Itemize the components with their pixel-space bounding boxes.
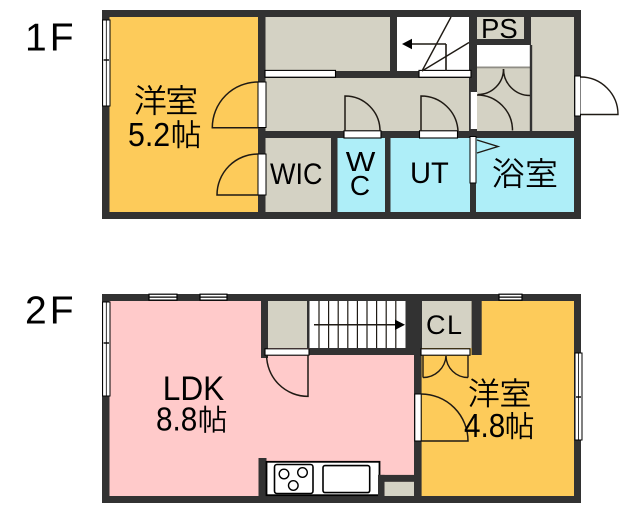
svg-text:PS: PS (481, 13, 518, 44)
svg-text:UT: UT (410, 157, 449, 190)
svg-text:8.8: 8.8 (156, 401, 197, 438)
svg-text:1F: 1F (25, 17, 77, 60)
svg-text:C: C (350, 170, 370, 201)
svg-text:4.8: 4.8 (464, 408, 505, 445)
svg-text:WIC: WIC (270, 158, 322, 192)
svg-text:2F: 2F (25, 290, 77, 333)
svg-text:5.2: 5.2 (128, 116, 170, 153)
svg-text:CL: CL (426, 310, 464, 340)
